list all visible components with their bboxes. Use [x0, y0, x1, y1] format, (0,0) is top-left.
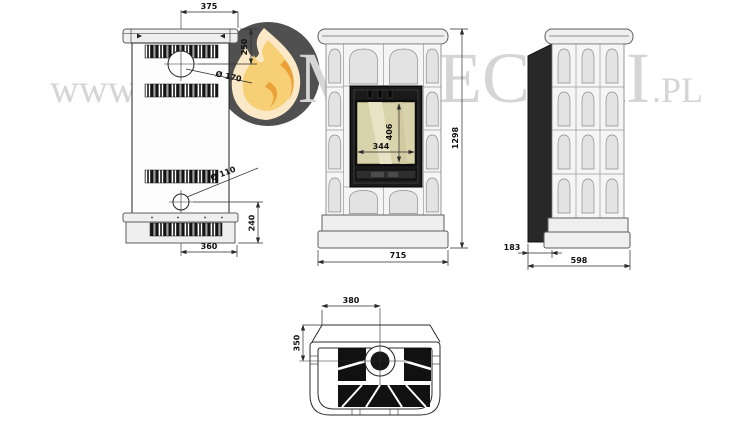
- rear-heat-channel: [528, 44, 552, 242]
- dim-rear-top-width: 375: [201, 2, 218, 11]
- top-dimensions: 380 350: [293, 296, 381, 361]
- rear-plinth-lip: [123, 213, 238, 222]
- front-base-step: [322, 215, 444, 231]
- side-crown-molding: [545, 29, 633, 44]
- vent-grille: [150, 223, 222, 236]
- dim-rear-channel: 183: [504, 243, 521, 252]
- dim-glass-height: 406: [385, 123, 394, 140]
- vent-grille: [145, 84, 218, 97]
- side-base: [544, 232, 630, 248]
- dim-total-depth: 598: [571, 256, 588, 265]
- technical-drawing: 375 250 Ø 170 Ø 110 240 360: [0, 0, 750, 422]
- vent-grille: [145, 170, 218, 183]
- dim-lower-offset: 240: [248, 214, 257, 231]
- stove-technical-drawing-page: www. K MINECZKI .PL: [0, 0, 750, 422]
- dim-total-width: 715: [390, 251, 407, 260]
- dim-rear-bottom-width: 360: [201, 242, 218, 251]
- air-vent-slot: [378, 90, 382, 98]
- dim-total-height: 1298: [451, 126, 460, 149]
- ash-control-band: [356, 170, 416, 179]
- dim-flue-from-front: 350: [293, 334, 302, 351]
- air-vent-slot: [368, 90, 372, 98]
- control-handle: [371, 172, 384, 177]
- top-section-view: 380 350: [293, 296, 441, 415]
- dim-flue-from-edge: 380: [343, 296, 360, 305]
- front-view: 344 406 1298 715: [318, 29, 468, 266]
- rear-panel-view: 375 250 Ø 170 Ø 110 240 360: [123, 2, 263, 257]
- front-base: [318, 231, 448, 248]
- side-view: 183 598: [504, 29, 633, 270]
- dim-flue-offset: 250: [240, 38, 249, 55]
- front-crown-molding: [318, 29, 448, 44]
- air-vent-slot: [388, 90, 392, 98]
- control-handle: [388, 172, 398, 177]
- dim-glass-width: 344: [373, 142, 390, 151]
- side-base-step: [548, 218, 628, 232]
